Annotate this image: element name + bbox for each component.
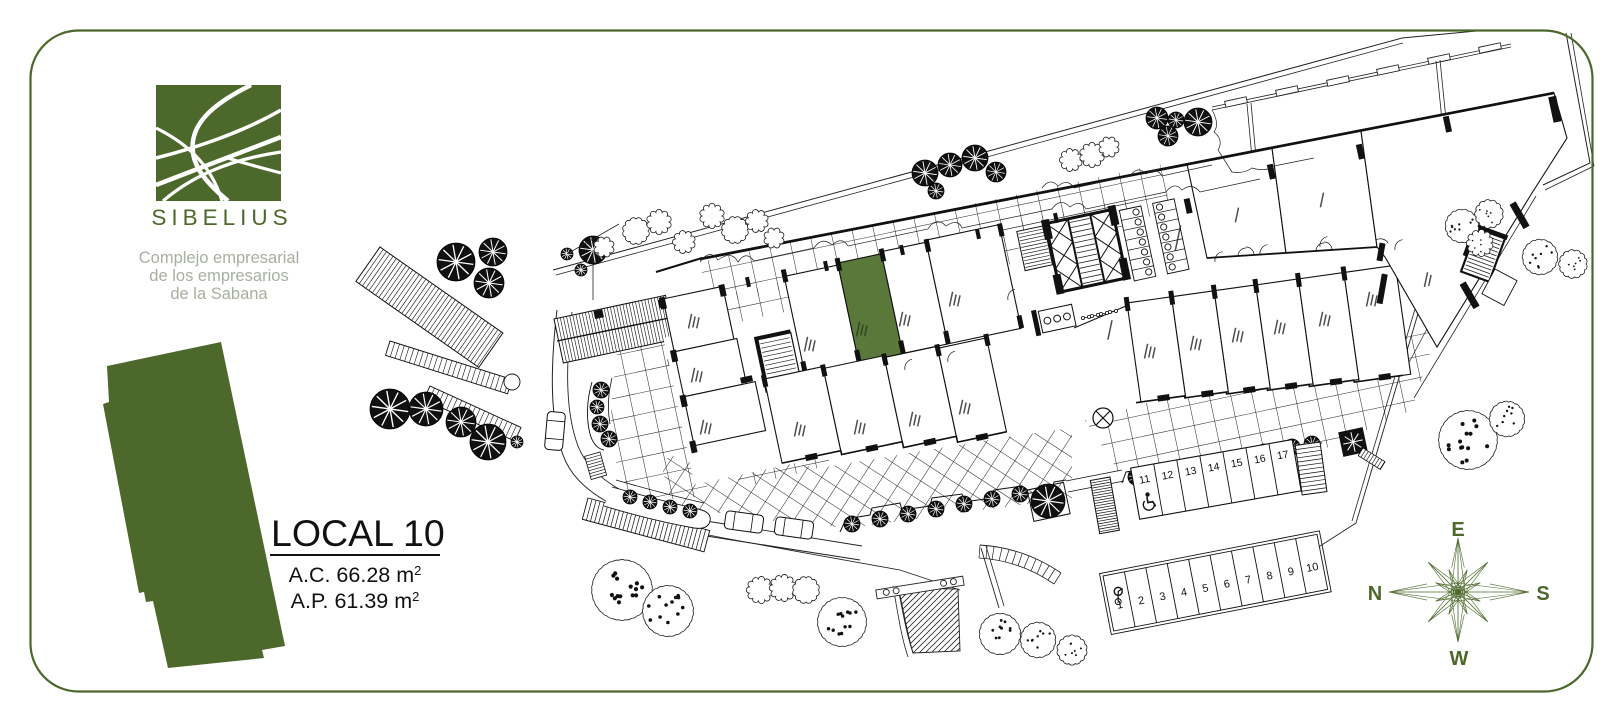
svg-text:de los empresarios: de los empresarios [149,267,288,285]
svg-text:13: 13 [1184,465,1198,479]
svg-text:A.P. 61.39 m2: A.P. 61.39 m2 [291,589,420,613]
svg-text:11: 11 [1138,473,1151,487]
svg-text:LOCAL 10: LOCAL 10 [271,512,445,554]
svg-text:E: E [1451,519,1464,541]
svg-text:15: 15 [1230,457,1244,471]
svg-text:16: 16 [1253,453,1267,467]
svg-text:14: 14 [1207,461,1221,475]
svg-text:S: S [1536,583,1549,605]
svg-text:W: W [1450,648,1469,670]
svg-text:de la Sabana: de la Sabana [170,285,268,303]
svg-text:SIBELIUS: SIBELIUS [151,205,292,230]
svg-text:A.C. 66.28 m2: A.C. 66.28 m2 [289,563,422,587]
svg-text:17: 17 [1276,448,1290,462]
svg-text:12: 12 [1161,469,1175,483]
svg-text:Complejo empresarial: Complejo empresarial [139,249,299,267]
svg-text:N: N [1368,583,1382,605]
svg-text:10: 10 [1305,561,1319,575]
